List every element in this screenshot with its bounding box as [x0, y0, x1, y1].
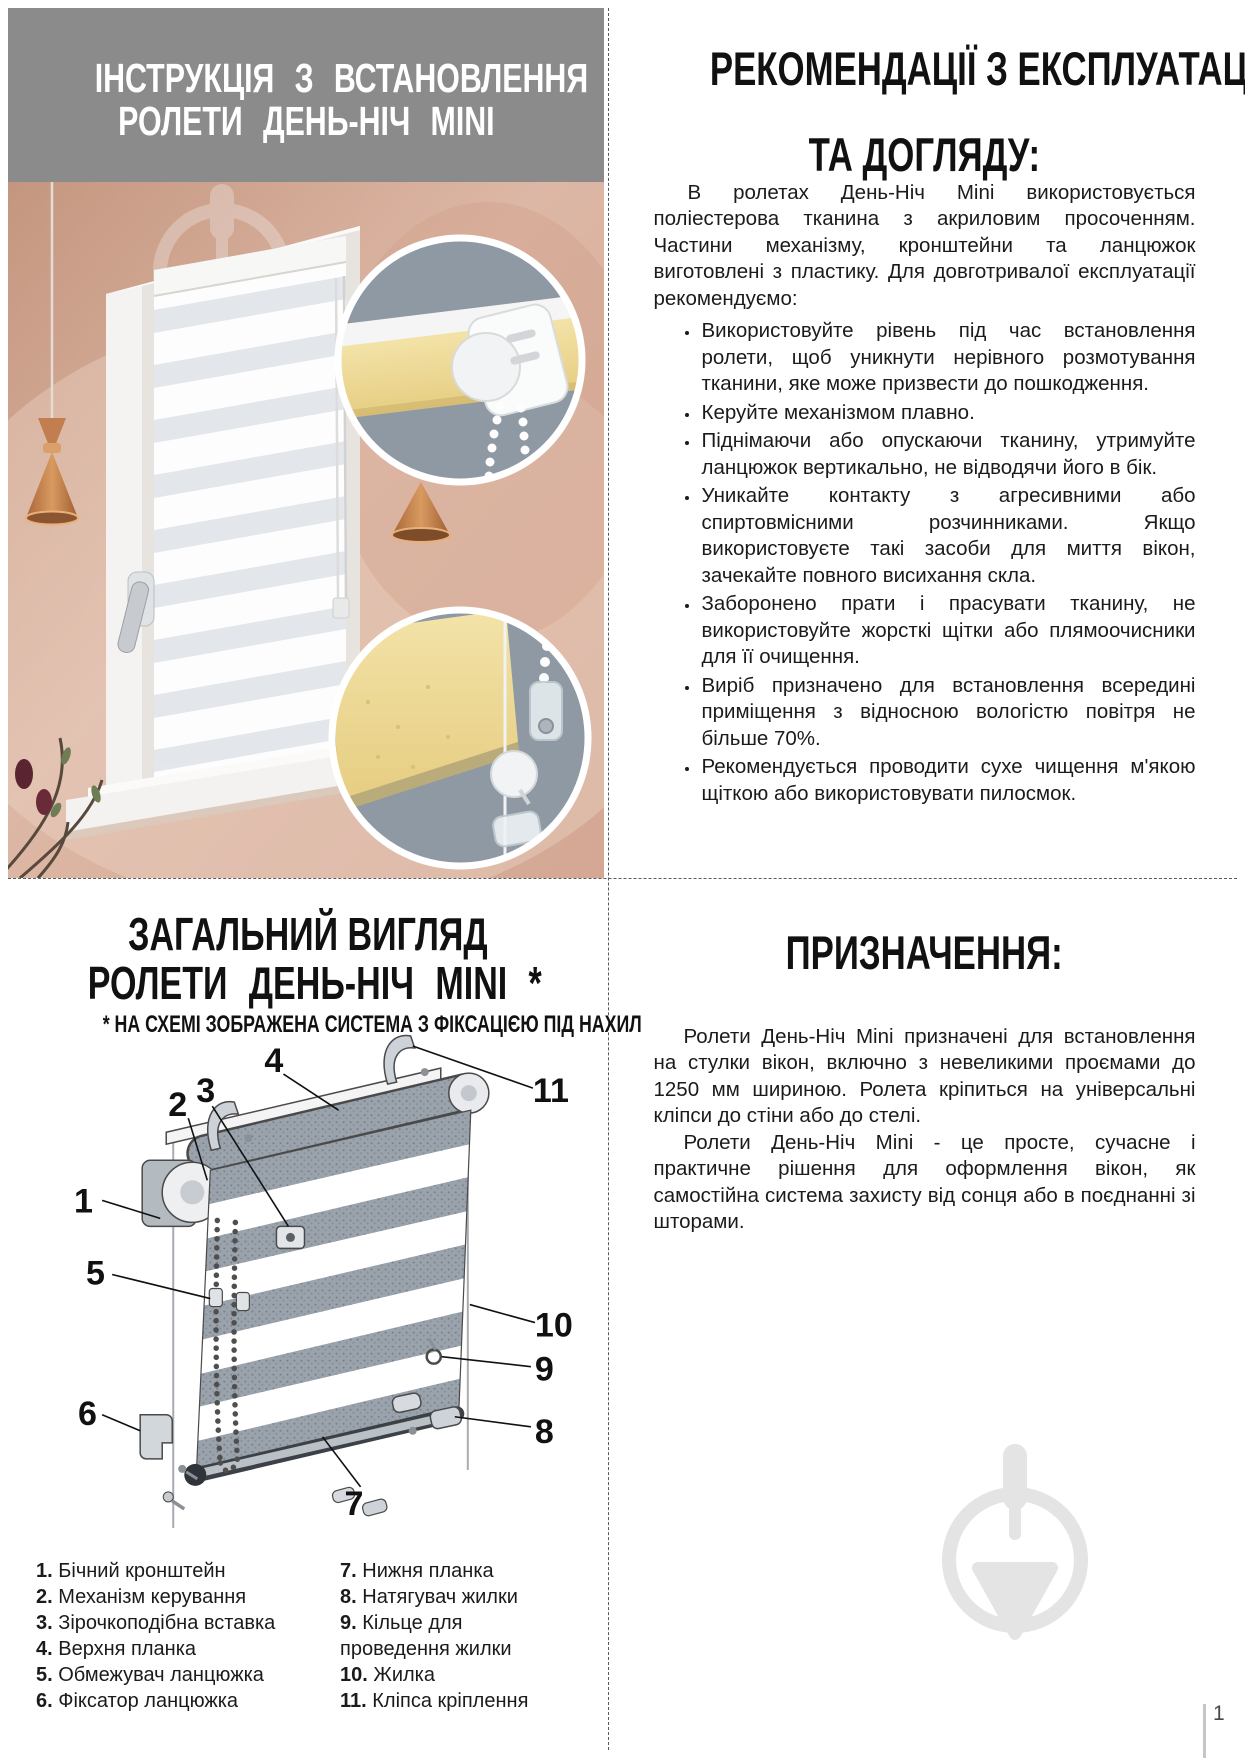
screw — [361, 1498, 388, 1517]
install-title-line2: РОЛЕТИ ДЕНЬ-НІЧ MINI — [8, 100, 604, 143]
legend-item: 7. Нижня планка — [340, 1558, 588, 1584]
callout-6: 6 — [78, 1395, 97, 1433]
callout-11: 11 — [533, 1072, 569, 1110]
legend-item: 8. Натягувач жилки — [340, 1584, 588, 1610]
legend-item: 4. Верхня планка — [36, 1636, 328, 1662]
chain-limiter — [209, 1289, 222, 1307]
inset2-tension-disc — [491, 751, 537, 797]
care-bullet: Використовуйте рівень під час встановлен… — [700, 318, 1196, 398]
legend-item: 6. Фіксатор ланцюжка — [36, 1688, 328, 1714]
legend-item: 2. Механізм керування — [36, 1584, 328, 1610]
horizontal-dashed-divider — [8, 878, 1237, 879]
legend-item: 1. Бічний кронштейн — [36, 1558, 328, 1584]
callout-9: 9 — [535, 1351, 554, 1389]
care-bullet: Уникайте контакту з агресивними або спир… — [700, 483, 1196, 589]
legend-item: 10. Жилка — [340, 1662, 588, 1688]
care-bullet: Рекомендується проводити сухе чищення м'… — [700, 754, 1196, 807]
callout-10: 10 — [535, 1307, 573, 1345]
legend-item: 5. Обмежувач ланцюжка — [36, 1662, 328, 1688]
overview-title-line1: ЗАГАЛЬНИЙ ВИГЛЯД — [8, 910, 608, 959]
parts-legend-right: 7. Нижня планка 8. Натягувач жилки 9. Кі… — [340, 1558, 588, 1714]
care-title-line1: РЕКОМЕНДАЦІЇ З ЕКСПЛУАТАЦІЇ — [612, 44, 1237, 94]
install-title-line1: ІНСТРУКЦІЯ З ВСТАНОВЛЕННЯ — [8, 57, 604, 100]
parts-legend: 1. Бічний кронштейн 2. Механізм керуванн… — [36, 1558, 588, 1714]
screw — [163, 1492, 173, 1502]
care-intro: В ролетах День-Ніч Mini використовується… — [654, 180, 1196, 313]
inset-fixator-detail — [332, 609, 588, 866]
callout-2: 2 — [168, 1086, 187, 1124]
callout-3: 3 — [196, 1072, 215, 1110]
chain-limiter — [236, 1293, 249, 1311]
legend-item: 9. Кільце для проведення жилки — [340, 1610, 588, 1662]
footer-rule — [1203, 1704, 1206, 1758]
purpose-paragraph-1: Ролети День-Ніч Mini призначені для вста… — [654, 1024, 1196, 1130]
brand-watermark-logo-icon — [930, 1438, 1100, 1688]
overview-section: ЗАГАЛЬНИЙ ВИГЛЯД РОЛЕТИ ДЕНЬ-НІЧ MINI * … — [8, 886, 608, 1750]
care-bullet-list: Використовуйте рівень під час встановлен… — [654, 318, 1196, 807]
vertical-dashed-divider — [608, 8, 609, 1750]
legend-item: 3. Зірочкоподібна вставка — [36, 1610, 328, 1636]
blind-exploded-diagram: 1 2 3 4 5 6 7 8 9 10 11 — [38, 1022, 578, 1538]
chain-fixator — [140, 1415, 172, 1459]
install-photo — [8, 182, 604, 878]
instruction-page: ІНСТРУКЦІЯ З ВСТАНОВЛЕННЯ РОЛЕТИ ДЕНЬ-НІ… — [0, 0, 1245, 1758]
legend-item: 11. Кліпса кріплення — [340, 1688, 588, 1714]
care-title-line2: ТА ДОГЛЯДУ: — [612, 130, 1237, 180]
callout-7: 7 — [345, 1485, 364, 1523]
install-title-band: ІНСТРУКЦІЯ З ВСТАНОВЛЕННЯ РОЛЕТИ ДЕНЬ-НІ… — [8, 8, 604, 182]
overview-title-line2: РОЛЕТИ ДЕНЬ-НІЧ MINI * — [8, 959, 608, 1008]
purpose-section: ПРИЗНАЧЕННЯ: Ролети День-Ніч Mini призна… — [612, 886, 1237, 1750]
photo-illustration — [8, 182, 604, 878]
purpose-title: ПРИЗНАЧЕННЯ: — [612, 928, 1237, 978]
callout-1: 1 — [74, 1182, 93, 1220]
page-number: 1 — [1213, 1702, 1225, 1726]
care-bullet: Керуйте механізмом плавно. — [700, 400, 1196, 427]
care-section: РЕКОМЕНДАЦІЇ З ЕКСПЛУАТАЦІЇ ТА ДОГЛЯДУ: … — [612, 8, 1237, 876]
care-bullet: Заборонено прати і прасувати тканину, не… — [700, 591, 1196, 671]
callout-5: 5 — [86, 1255, 105, 1293]
purpose-paragraph-2: Ролети День-Ніч Mini - це просте, сучасн… — [654, 1130, 1196, 1236]
care-bullet: Піднімаючи або опускаючи тканину, утриму… — [700, 428, 1196, 481]
parts-legend-left: 1. Бічний кронштейн 2. Механізм керуванн… — [36, 1558, 328, 1714]
callout-8: 8 — [535, 1413, 554, 1451]
care-bullet: Виріб призначено для встановлення всеред… — [700, 673, 1196, 753]
callout-4: 4 — [264, 1042, 283, 1080]
